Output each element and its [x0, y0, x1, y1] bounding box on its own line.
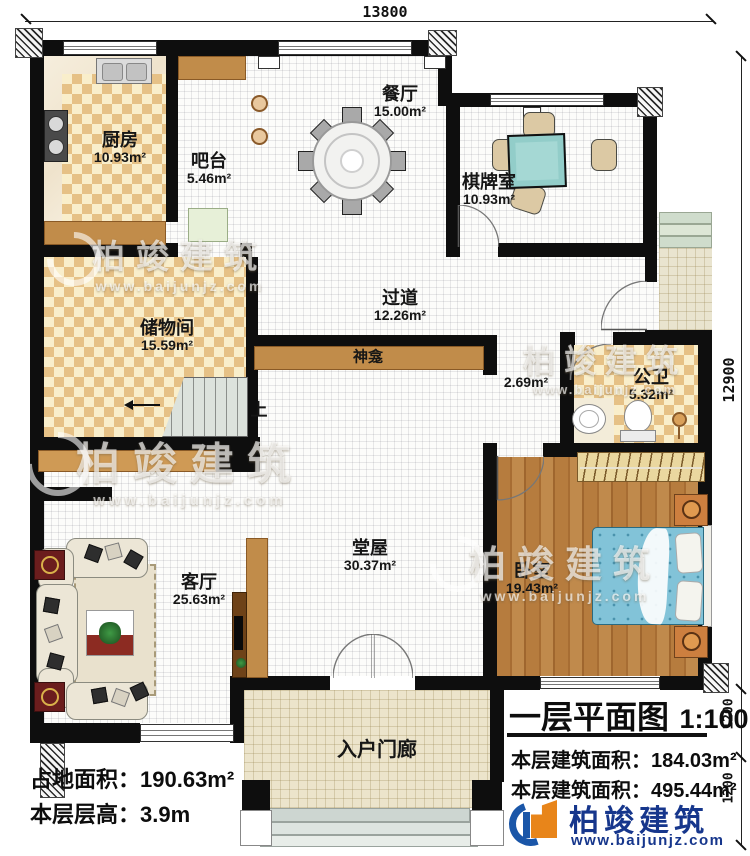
corridor-label: 过道 12.26m² [374, 288, 426, 324]
mahjong-label: 棋牌室 10.93m² [462, 172, 516, 208]
sink-bowl [579, 410, 599, 428]
dimension-right-main: 12900 [720, 357, 738, 402]
room-area: 5.46m² [187, 171, 231, 187]
storage-label: 储物间 15.59m² [140, 318, 194, 354]
title-block: 一层平面图 1:100 本层建筑面积：184.03m² 本层建筑面积：495.4… [507, 690, 713, 850]
burner [48, 116, 64, 132]
wall-niche [258, 56, 280, 69]
hall-label: 堂屋 30.37m² [344, 538, 396, 574]
nightstand-lamp [682, 500, 701, 519]
sofa-pillow [43, 597, 60, 614]
plot-area-info: 占地面积：190.63m² [30, 762, 234, 794]
door-bedroom [496, 456, 544, 502]
door-mahjong [457, 205, 499, 247]
entry-door-left [333, 634, 375, 678]
hallway-cabinet [38, 450, 216, 472]
room-name: 厨房 [94, 130, 146, 150]
pillow [675, 580, 704, 622]
outside-area-top-right [452, 56, 712, 93]
wall-storage-top [240, 243, 252, 257]
bar-stool [251, 95, 268, 112]
window-bedroom [540, 677, 660, 689]
plan-title-row: 一层平面图 1:100 [509, 692, 749, 738]
dim-tick [705, 13, 716, 24]
floor-height-value: 3.9m [140, 802, 190, 827]
coffee-table [86, 610, 134, 656]
kitchen-sink [96, 58, 152, 84]
sofa-pillow [91, 687, 108, 704]
plant [99, 622, 121, 644]
room-area: 12.26m² [374, 308, 426, 324]
window-mahjong [490, 94, 604, 106]
plan-scale: 1:100 [679, 704, 748, 734]
room-area: 15.00m² [374, 104, 426, 120]
pier-hatch [703, 663, 729, 693]
room-name: 客厅 [173, 572, 225, 592]
door-side-entry [601, 281, 647, 331]
living-label: 客厅 25.63m² [173, 572, 225, 608]
stairs-arrow-icon [124, 400, 133, 410]
entry-door-right [371, 634, 413, 678]
room-area: 2.69m² [504, 374, 548, 390]
door-bathroom [569, 344, 611, 382]
room-name: 公卫 [629, 367, 673, 387]
floor-height-info: 本层层高：3.9m [30, 797, 190, 829]
shower-stem [678, 427, 680, 439]
wall-front [415, 676, 540, 690]
niche-area-label: 2.69m² [504, 374, 548, 392]
room-area: 10.93m² [94, 150, 146, 166]
room-area: 15.59m² [140, 338, 194, 354]
window-dining [278, 41, 412, 55]
window-kitchen [63, 41, 157, 55]
front-step [264, 822, 474, 835]
room-area: 30.37m² [344, 558, 396, 574]
plan-title: 一层平面图 [509, 699, 669, 735]
wall-corridor-right [645, 257, 657, 282]
nightstand-lamp [682, 632, 701, 651]
wall-front [230, 676, 330, 690]
dining-label: 餐厅 15.00m² [374, 84, 426, 120]
room-name: 卧室 [506, 561, 558, 581]
room-area: 25.63m² [173, 592, 225, 608]
pillow [675, 532, 704, 574]
wall-bathroom-top [613, 332, 647, 345]
wall-shrine-stub [483, 335, 497, 375]
room-area: 19.43m² [506, 581, 558, 597]
room-name: 堂屋 [344, 538, 396, 558]
toilet-tank [620, 430, 656, 442]
floor-plan-canvas: 上 神龛 [0, 0, 750, 856]
porch-column [472, 780, 502, 810]
wall-living-bottom [30, 723, 140, 743]
dim-tick [20, 13, 31, 24]
shrine-label: 神龛 [353, 350, 383, 367]
wardrobe-rail [580, 467, 702, 469]
porch-label: 入户门廊 [337, 739, 417, 761]
room-name: 储物间 [140, 318, 194, 338]
pier-hatch [15, 28, 43, 58]
floor-area-value-1: 184.03m² [651, 750, 737, 772]
room-name: 棋牌室 [462, 172, 516, 192]
wall-porch-right [490, 690, 504, 782]
brand-logo-tower [523, 812, 530, 838]
kitchen-counter [44, 221, 166, 245]
wall-niche [424, 56, 446, 69]
wall-living-top [30, 487, 112, 501]
shower-drain [672, 412, 687, 427]
bathroom-sink [572, 404, 606, 434]
wall-stairs-corner [214, 448, 260, 472]
side-porch-floor [659, 248, 712, 332]
sink-basin [102, 63, 123, 81]
plant [236, 658, 246, 668]
bar-stool [251, 128, 268, 145]
bathroom-label: 公卫 5.32m² [629, 367, 673, 403]
mahjong-table-top [515, 141, 558, 180]
brand-logo-icon [507, 798, 567, 850]
front-step [268, 808, 470, 822]
mahjong-chair [591, 139, 617, 171]
pier-hatch [637, 87, 663, 117]
side-step [659, 212, 712, 224]
bedroom-label: 卧室 19.43m² [506, 561, 558, 597]
porch-column [242, 780, 270, 810]
mahjong-table [507, 133, 567, 189]
title-underline [507, 733, 707, 737]
room-area: 5.32m² [629, 387, 673, 403]
tv-wall-panel [246, 538, 268, 678]
room-name: 过道 [374, 288, 426, 308]
wall-kitchen-bar [166, 56, 178, 222]
side-step [659, 236, 712, 248]
wall-mahjong-right [643, 93, 657, 257]
side-step [659, 224, 712, 236]
tv-icon [234, 616, 243, 650]
floor-area-label-1: 本层建筑面积： [511, 750, 651, 772]
stove [44, 110, 68, 162]
dimension-line-top [25, 21, 713, 22]
dimension-top: 13800 [362, 3, 407, 21]
wardrobe [577, 452, 705, 482]
bar-cabinet [188, 208, 228, 242]
sink-basin [126, 63, 147, 81]
plot-area-label: 占地面积： [30, 767, 140, 792]
end-table [34, 550, 65, 580]
wall-storage-top [30, 243, 178, 257]
dining-table-center [340, 149, 364, 173]
stairs-direction-line [132, 404, 160, 406]
room-name: 吧台 [187, 151, 231, 171]
room-name: 餐厅 [374, 84, 426, 104]
room-area: 10.93m² [462, 192, 516, 208]
plot-area-value: 190.63m² [140, 767, 234, 792]
stairs-up-label: 上 [251, 400, 268, 419]
floor-area-row-1: 本层建筑面积：184.03m² [511, 744, 737, 773]
burner [48, 139, 64, 155]
end-table [34, 682, 65, 712]
pier-hatch [428, 30, 457, 56]
front-step [260, 835, 478, 847]
toilet [624, 400, 652, 432]
window-living [140, 724, 234, 742]
porch-column-base [240, 810, 272, 846]
bar-counter [178, 56, 246, 80]
porch-column-base [470, 810, 504, 846]
wall-mahjong-bottom [498, 243, 657, 257]
brand-url: www.baijunjz.com [571, 832, 724, 849]
wall-bedroom-left [483, 443, 497, 690]
outside-area-right [657, 93, 712, 212]
bar-label: 吧台 5.46m² [187, 151, 231, 187]
floor-height-label: 本层层高： [30, 802, 140, 827]
kitchen-label: 厨房 10.93m² [94, 130, 146, 166]
